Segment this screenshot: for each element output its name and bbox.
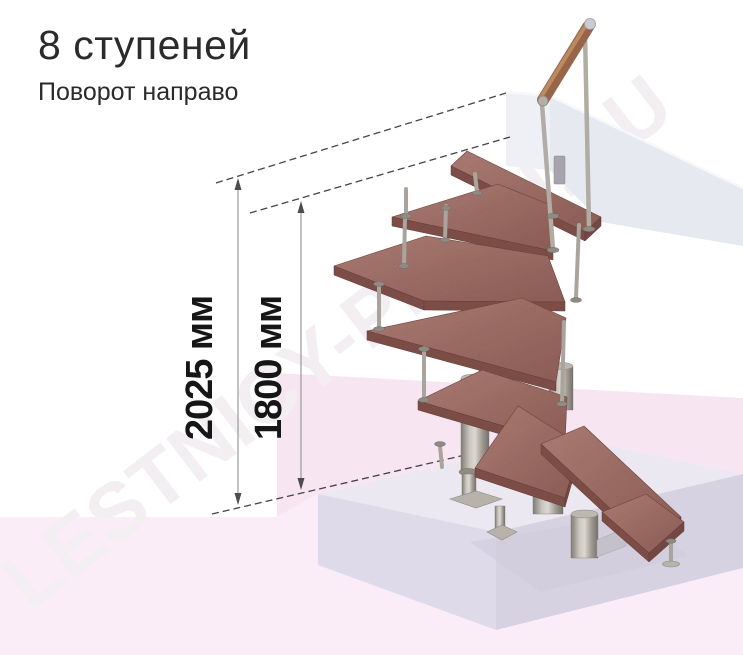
handrail-wall-bracket <box>554 156 565 184</box>
product-dimension-diagram: LESTNICY-PROFI.RU <box>0 0 743 655</box>
page-title: 8 ступеней <box>38 22 251 69</box>
title-block: 8 ступеней Поворот направо <box>38 22 251 107</box>
page-subtitle: Поворот направо <box>38 78 251 107</box>
rail-collar <box>538 96 548 106</box>
rail-end-cap <box>585 19 596 30</box>
dimension-label-overall: 2025 мм <box>179 296 221 440</box>
dimension-label-top-step: 1800 мм <box>248 296 290 440</box>
